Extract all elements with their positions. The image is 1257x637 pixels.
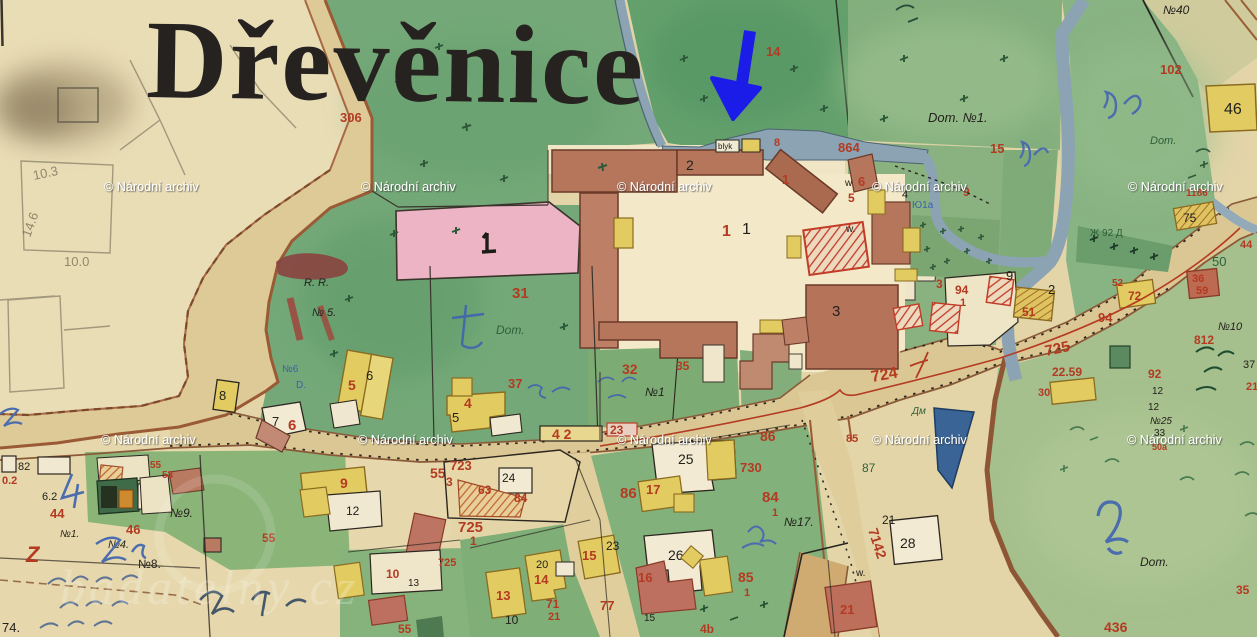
svg-text:3: 3: [446, 475, 453, 489]
svg-text:46: 46: [1224, 101, 1242, 118]
svg-text:12: 12: [346, 504, 360, 518]
svg-text:1: 1: [742, 221, 751, 238]
svg-text:Ж 92 Д: Ж 92 Д: [1090, 228, 1123, 239]
svg-text:Dom.: Dom.: [1150, 135, 1176, 147]
svg-text:10: 10: [505, 613, 519, 627]
svg-text:R. R.: R. R.: [304, 277, 329, 289]
svg-text:© Národní archiv: © Národní archiv: [358, 433, 453, 447]
svg-text:5: 5: [848, 191, 855, 205]
svg-text:© Národní archiv: © Národní archiv: [101, 433, 196, 447]
svg-text:51: 51: [1022, 305, 1036, 319]
svg-text:23: 23: [606, 539, 620, 553]
svg-text:32: 32: [622, 361, 638, 377]
svg-text:59: 59: [1196, 285, 1208, 297]
svg-text:№17.: №17.: [784, 515, 814, 529]
svg-text:© Národní archiv: © Národní archiv: [617, 433, 712, 447]
svg-text:№6: №6: [282, 364, 299, 375]
svg-text:Дм: Дм: [911, 406, 926, 417]
svg-text:84: 84: [514, 491, 528, 505]
svg-text:52: 52: [1112, 278, 1124, 289]
svg-text:8: 8: [774, 137, 780, 149]
svg-text:D.: D.: [296, 380, 306, 391]
svg-text:№10: №10: [1218, 321, 1243, 333]
svg-text:24: 24: [502, 471, 516, 485]
svg-text:Dom. №1.: Dom. №1.: [928, 110, 988, 125]
svg-text:14: 14: [534, 572, 549, 587]
svg-text:20: 20: [536, 559, 548, 571]
svg-text:86: 86: [760, 428, 776, 444]
svg-text:13: 13: [496, 588, 510, 603]
svg-text:badatelny cz: badatelny cz: [60, 559, 359, 615]
svg-text:44: 44: [50, 506, 65, 521]
svg-text:13: 13: [408, 578, 420, 589]
svg-text:55: 55: [398, 622, 412, 636]
svg-text:№1: №1: [645, 385, 665, 399]
svg-text:10: 10: [386, 567, 400, 581]
svg-text:16: 16: [638, 570, 652, 585]
svg-text:w.: w.: [855, 568, 865, 579]
svg-text:84: 84: [762, 489, 779, 506]
svg-text:1: 1: [772, 507, 778, 519]
svg-text:725: 725: [438, 557, 456, 569]
svg-text:37: 37: [508, 376, 522, 391]
svg-text:© Národní archiv: © Národní archiv: [1128, 180, 1223, 194]
svg-text:1: 1: [470, 534, 477, 548]
svg-text:4: 4: [464, 395, 472, 411]
svg-text:21: 21: [882, 513, 896, 527]
svg-text:12: 12: [1148, 402, 1160, 413]
svg-text:5: 5: [348, 377, 356, 393]
svg-text:№1.: №1.: [60, 529, 79, 540]
svg-text:74.: 74.: [2, 620, 20, 635]
svg-text:46: 46: [126, 522, 140, 537]
svg-text:blyk: blyk: [718, 142, 733, 151]
svg-text:22.59: 22.59: [1052, 365, 1082, 379]
svg-text:№25: №25: [1150, 416, 1172, 427]
svg-text:35: 35: [1236, 583, 1250, 597]
svg-text:© Národní archiv: © Národní archiv: [872, 180, 967, 194]
svg-text:© Národní archiv: © Národní archiv: [361, 180, 456, 194]
svg-text:№9.: №9.: [170, 506, 193, 520]
svg-text:Ю1а: Ю1а: [912, 200, 934, 211]
svg-text:14: 14: [766, 44, 781, 59]
svg-text:4 2: 4 2: [552, 426, 572, 442]
svg-text:4b: 4b: [700, 622, 714, 636]
svg-text:94: 94: [955, 283, 969, 297]
svg-text:9: 9: [1006, 268, 1013, 283]
svg-text:75: 75: [1183, 211, 1197, 225]
svg-text:2: 2: [1048, 282, 1055, 297]
svg-text:Z: Z: [25, 542, 41, 567]
svg-text:0.2: 0.2: [2, 475, 17, 487]
svg-text:82: 82: [18, 461, 30, 473]
svg-text:№ 5.: № 5.: [312, 307, 336, 319]
svg-text:1: 1: [782, 172, 789, 187]
svg-text:3: 3: [832, 303, 840, 320]
svg-text:Dom.: Dom.: [1140, 555, 1169, 569]
svg-text:28: 28: [900, 535, 916, 551]
svg-text:30: 30: [1038, 387, 1050, 399]
svg-text:21: 21: [840, 602, 854, 617]
svg-text:55: 55: [150, 460, 162, 471]
svg-text:35: 35: [676, 359, 690, 373]
svg-text:864: 864: [838, 140, 860, 155]
svg-text:87: 87: [862, 461, 876, 475]
svg-text:63: 63: [478, 483, 492, 497]
svg-text:3: 3: [936, 277, 943, 291]
svg-text:17: 17: [646, 482, 660, 497]
svg-text:1: 1: [960, 297, 966, 309]
svg-text:53: 53: [162, 470, 174, 481]
svg-text:Dřevěnice: Dřevěnice: [146, 0, 646, 129]
svg-text:86: 86: [620, 485, 637, 502]
svg-text:44: 44: [1240, 239, 1253, 251]
svg-text:92: 92: [1148, 367, 1162, 381]
svg-text:723: 723: [450, 458, 472, 473]
svg-text:6: 6: [288, 417, 296, 434]
svg-text:№40: №40: [1163, 3, 1190, 17]
svg-text:8: 8: [219, 388, 226, 403]
svg-text:6.2: 6.2: [42, 491, 57, 503]
svg-text:9: 9: [340, 475, 348, 491]
svg-text:w: w: [844, 178, 853, 189]
svg-text:5: 5: [452, 410, 459, 425]
svg-text:© Národní archiv: © Národní archiv: [104, 180, 199, 194]
svg-text:37: 37: [1243, 359, 1255, 371]
svg-text:730: 730: [740, 460, 762, 475]
svg-text:6: 6: [858, 174, 865, 189]
svg-text:© Národní archiv: © Národní archiv: [617, 180, 712, 194]
svg-text:© Národní archiv: © Národní archiv: [872, 433, 967, 447]
svg-text:85: 85: [738, 569, 754, 585]
svg-text:812: 812: [1194, 333, 1214, 347]
svg-text:21: 21: [548, 611, 560, 623]
svg-text:15: 15: [644, 613, 656, 624]
svg-text:36: 36: [1192, 273, 1204, 285]
svg-text:85: 85: [846, 433, 858, 445]
svg-text:102: 102: [1160, 62, 1182, 77]
svg-text:w.: w.: [845, 224, 855, 235]
svg-text:436: 436: [1104, 619, 1128, 635]
svg-text:10.0: 10.0: [64, 254, 89, 269]
svg-text:50: 50: [1212, 254, 1226, 269]
svg-text:12: 12: [1152, 386, 1164, 397]
svg-text:1: 1: [744, 587, 750, 599]
svg-text:15: 15: [990, 141, 1004, 156]
svg-text:26: 26: [668, 547, 684, 563]
svg-text:2: 2: [686, 157, 694, 173]
svg-text:15: 15: [582, 548, 596, 563]
svg-text:© Národní archiv: © Národní archiv: [1127, 433, 1222, 447]
svg-text:1: 1: [722, 223, 731, 240]
svg-text:21: 21: [1246, 381, 1257, 393]
svg-text:71: 71: [546, 597, 560, 611]
svg-text:6: 6: [366, 368, 373, 383]
svg-text:25: 25: [678, 451, 694, 467]
svg-text:Dom.: Dom.: [496, 323, 525, 337]
svg-text:31: 31: [512, 285, 529, 302]
